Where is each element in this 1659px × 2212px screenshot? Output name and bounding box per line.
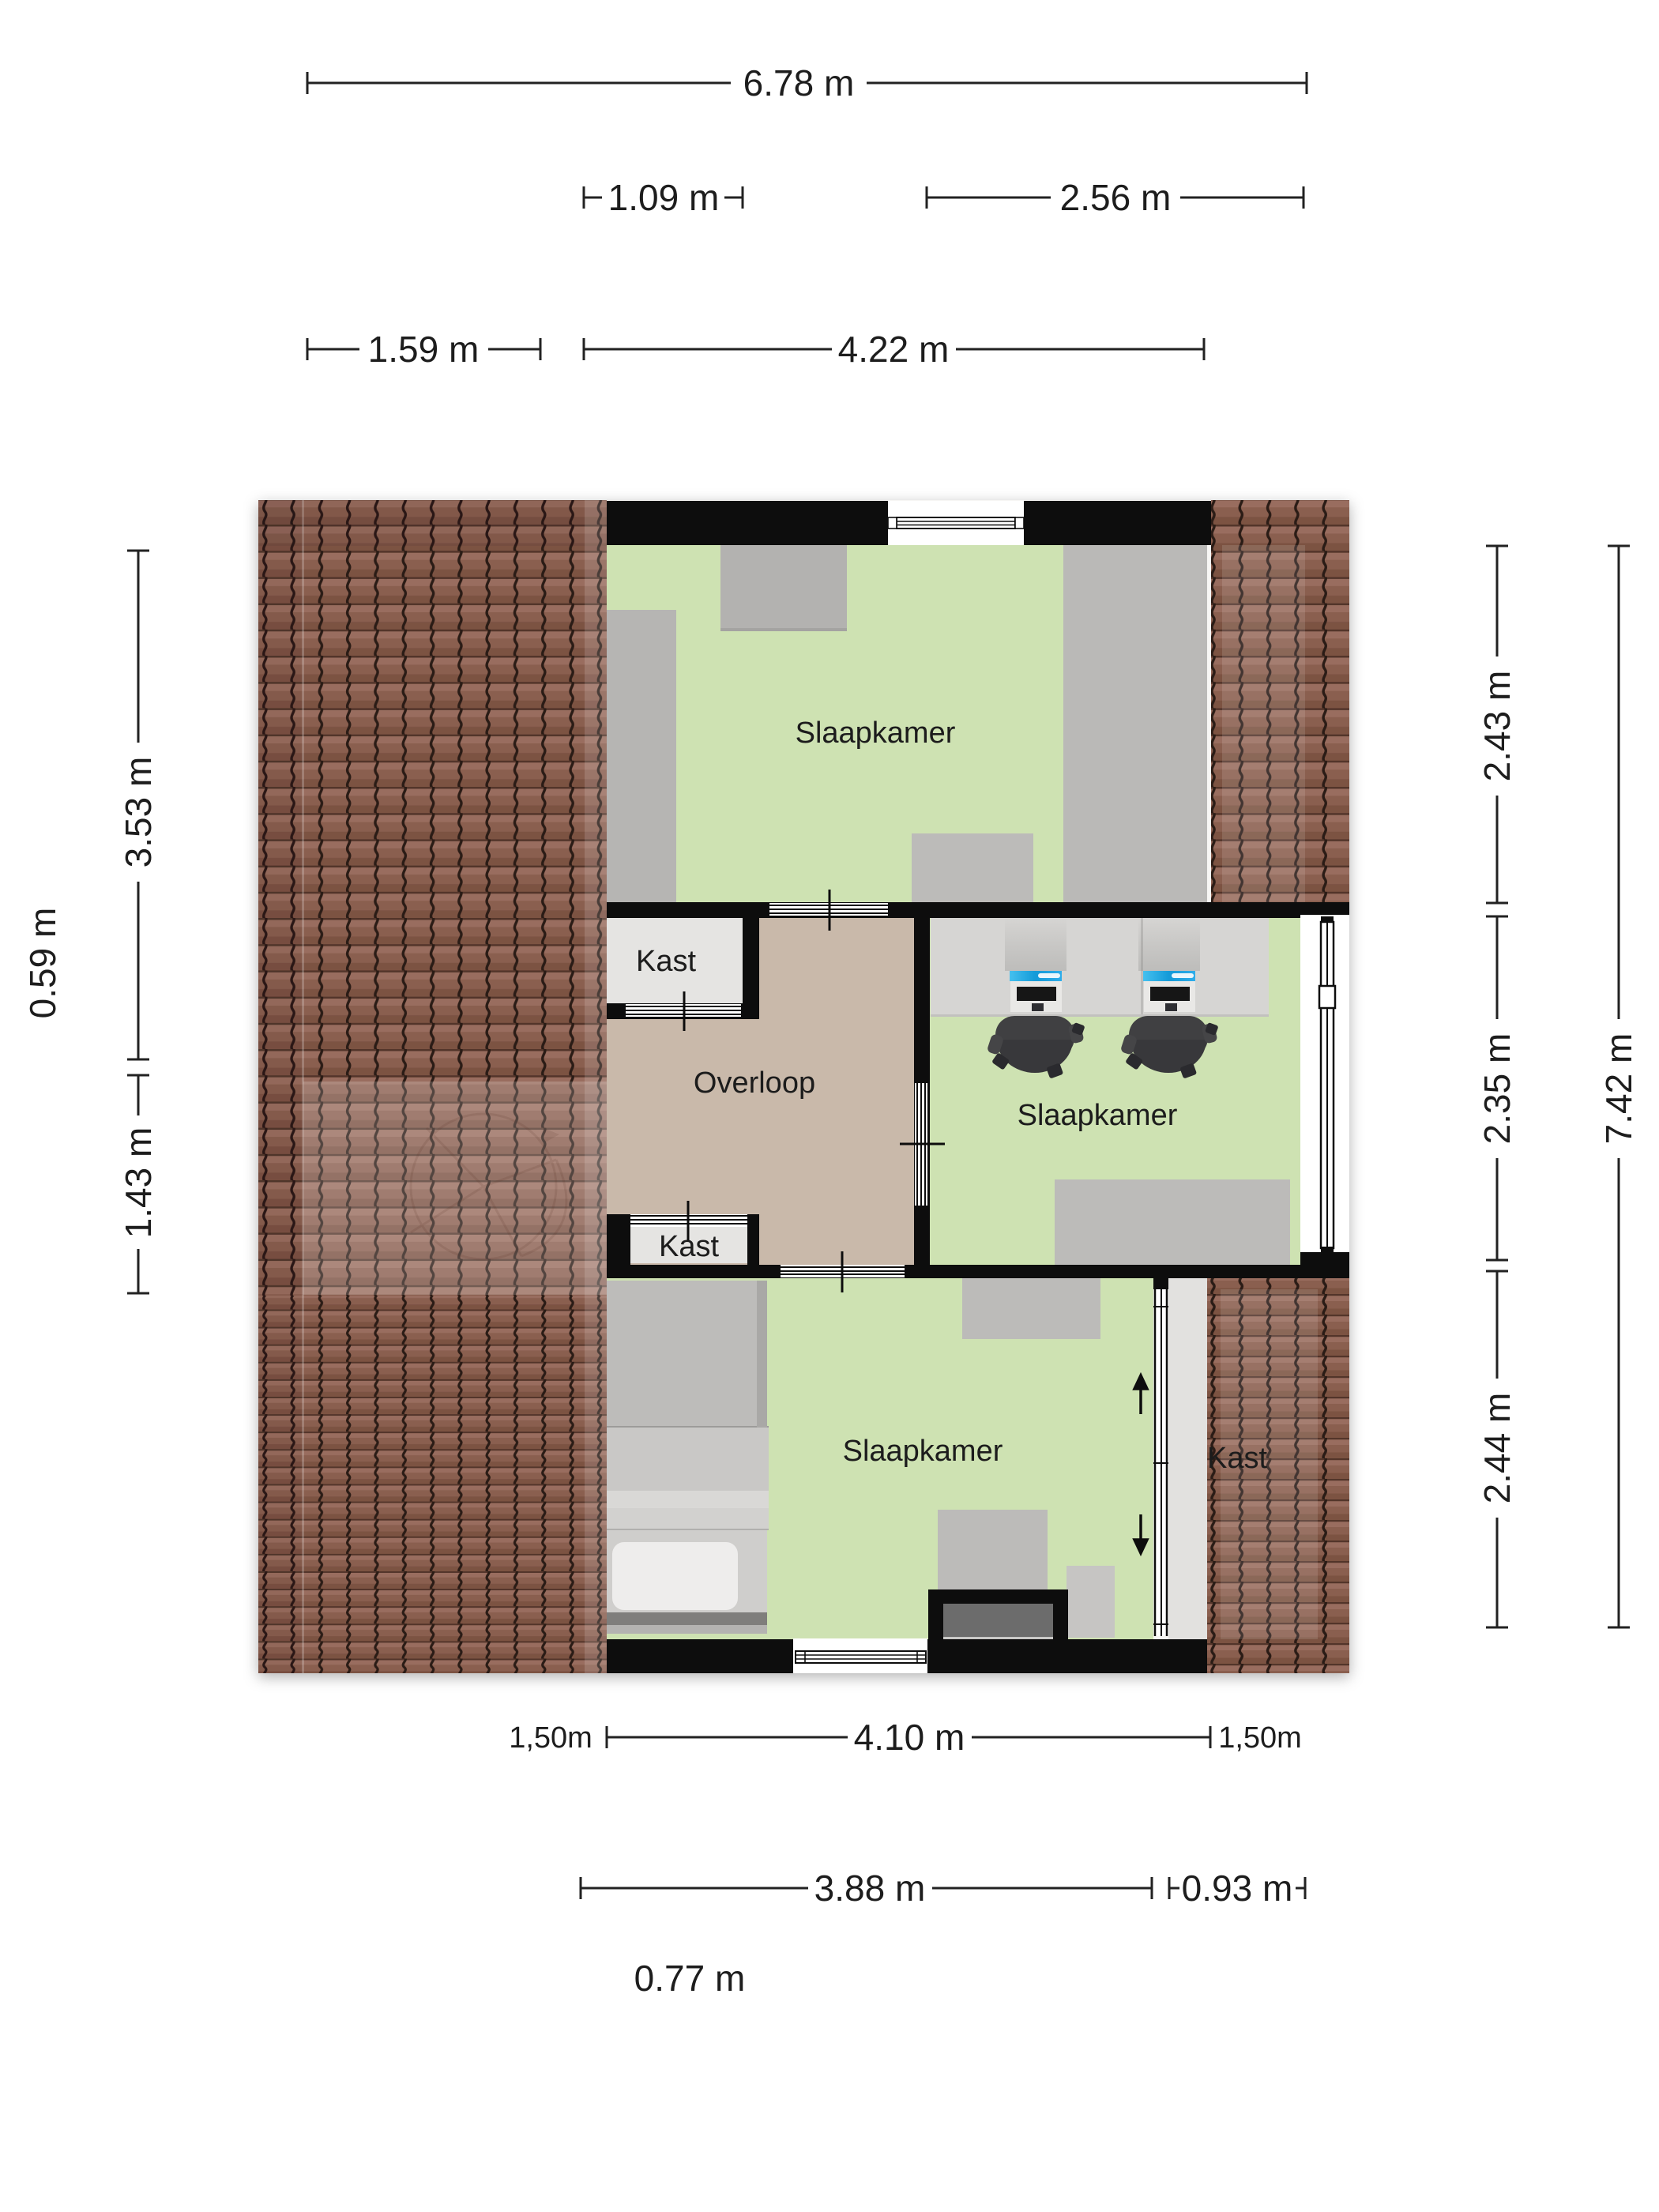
svg-text:1.43 m: 1.43 m	[118, 1127, 159, 1239]
svg-text:0.93 m: 0.93 m	[1182, 1868, 1293, 1909]
svg-text:0.59 m: 0.59 m	[22, 908, 63, 1019]
svg-text:2.43 m: 2.43 m	[1477, 671, 1518, 782]
svg-text:1.59 m: 1.59 m	[368, 329, 480, 370]
svg-text:3.53 m: 3.53 m	[118, 757, 159, 868]
svg-text:1.09 m: 1.09 m	[608, 177, 720, 218]
svg-text:Slaapkamer: Slaapkamer	[843, 1435, 1003, 1468]
svg-text:Overloop: Overloop	[694, 1066, 815, 1100]
svg-text:Slaapkamer: Slaapkamer	[1018, 1099, 1178, 1132]
svg-text:4.22 m: 4.22 m	[838, 329, 950, 370]
svg-text:2.44 m: 2.44 m	[1477, 1393, 1518, 1504]
svg-text:2.35 m: 2.35 m	[1477, 1033, 1518, 1145]
svg-text:1,50m: 1,50m	[509, 1721, 592, 1755]
svg-text:Kast: Kast	[1207, 1442, 1267, 1475]
svg-text:7.42 m: 7.42 m	[1598, 1033, 1639, 1145]
svg-text:2.56 m: 2.56 m	[1060, 177, 1172, 218]
svg-text:3.88 m: 3.88 m	[814, 1868, 926, 1909]
svg-text:0.77 m: 0.77 m	[634, 1958, 746, 1999]
svg-text:4.10 m: 4.10 m	[854, 1717, 965, 1758]
svg-text:6.78 m: 6.78 m	[743, 62, 855, 103]
svg-text:1,50m: 1,50m	[1218, 1721, 1302, 1755]
svg-text:Slaapkamer: Slaapkamer	[796, 717, 956, 750]
svg-text:Kast: Kast	[636, 945, 696, 978]
